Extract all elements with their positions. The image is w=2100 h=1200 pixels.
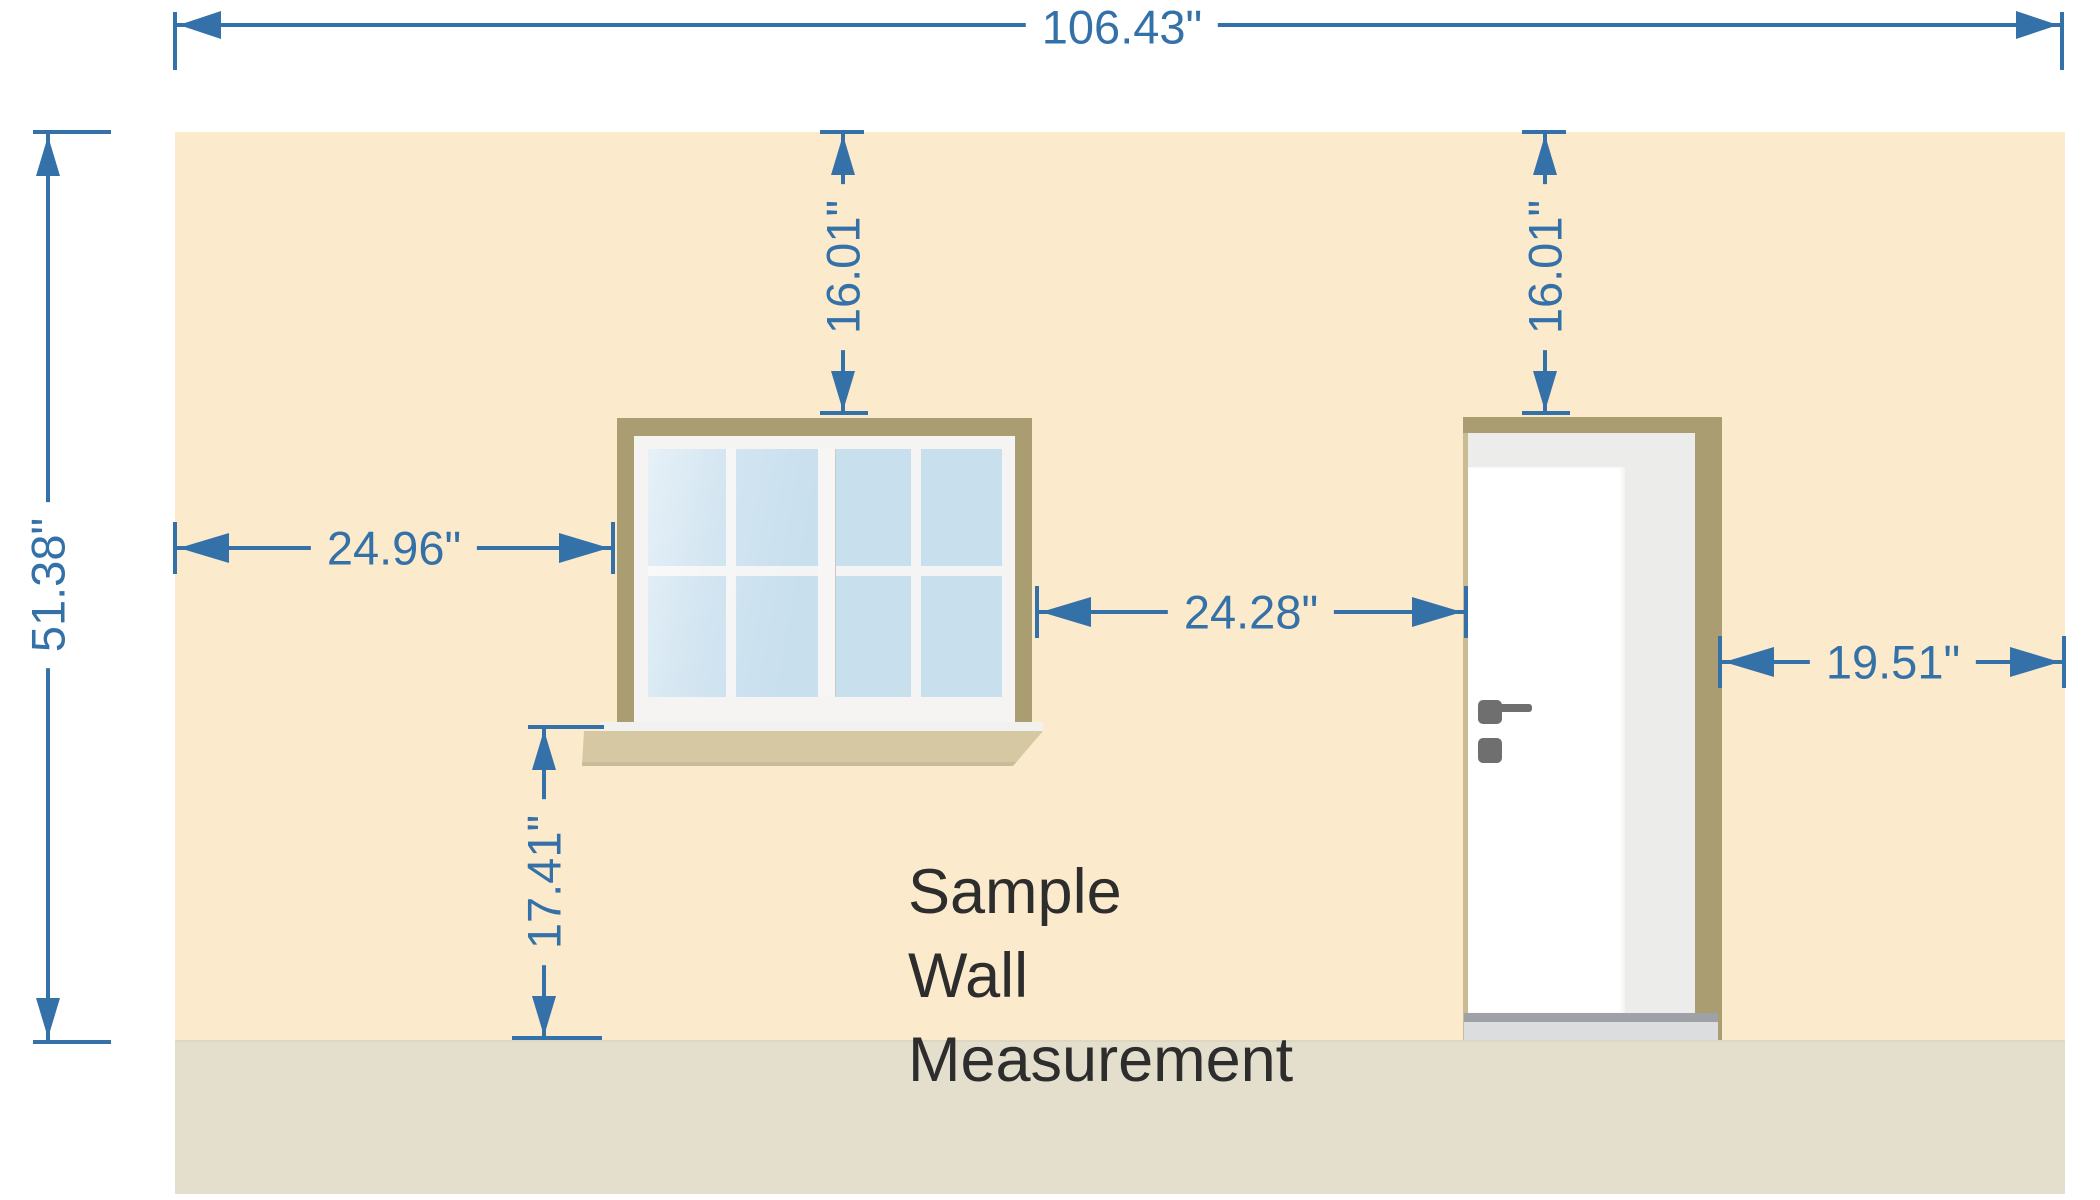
door-trim-right (1695, 417, 1722, 1040)
caption-line-2: Wall (908, 934, 1293, 1018)
dimension-label: 24.96" (311, 519, 477, 578)
door-handle-icon (1478, 700, 1502, 724)
arrowhead-left-icon (1724, 647, 1774, 677)
dimension-label: 19.51" (1810, 633, 1976, 692)
door-lock-icon (1478, 738, 1502, 763)
arrowhead-down-icon (831, 371, 855, 411)
dimension-label: 16.01" (814, 184, 873, 350)
dimension-tick (528, 725, 604, 729)
window-sill-ledge (600, 722, 1043, 731)
dimension-tick (173, 12, 177, 70)
arrowhead-left-icon (179, 533, 229, 563)
arrowhead-left-icon (179, 11, 221, 39)
dimension-tick (33, 130, 111, 134)
door-threshold-shadow (1464, 1013, 1718, 1022)
arrowhead-down-icon (532, 996, 556, 1036)
arrowhead-up-icon (532, 730, 556, 770)
dimension-label: 17.41" (515, 799, 574, 965)
dimension-label: 24.28" (1168, 583, 1334, 642)
arrowhead-right-icon (2016, 11, 2058, 39)
door-trim-top (1463, 417, 1722, 433)
arrowhead-up-icon (1533, 135, 1557, 175)
dimension-tick (33, 1040, 111, 1044)
arrowhead-right-icon (2010, 647, 2060, 677)
caption-line-3: Measurement (908, 1018, 1293, 1102)
dimension-tick (512, 1036, 602, 1040)
door-threshold (1464, 1022, 1718, 1040)
caption-line-1: Sample (908, 850, 1293, 934)
dimension-label: 51.38" (19, 502, 78, 668)
dimension-label: 106.43" (1026, 0, 1218, 57)
arrowhead-up-icon (36, 136, 60, 176)
dimension-tick (2060, 12, 2064, 70)
dimension-label: 16.01" (1516, 184, 1575, 350)
caption: Sample Wall Measurement (908, 850, 1293, 1102)
arrowhead-down-icon (36, 998, 60, 1038)
window-glass-reflection (648, 449, 1002, 697)
arrowhead-left-icon (1041, 597, 1091, 627)
arrowhead-right-icon (1412, 597, 1462, 627)
arrowhead-up-icon (831, 135, 855, 175)
arrowhead-right-icon (559, 533, 609, 563)
window-sill (582, 731, 1043, 766)
window-glass (648, 449, 1002, 697)
arrowhead-down-icon (1533, 371, 1557, 411)
wall-measurement-diagram: Sample Wall Measurement 106.43" 51.38" 1… (0, 0, 2100, 1200)
door-lever-icon (1499, 704, 1532, 712)
